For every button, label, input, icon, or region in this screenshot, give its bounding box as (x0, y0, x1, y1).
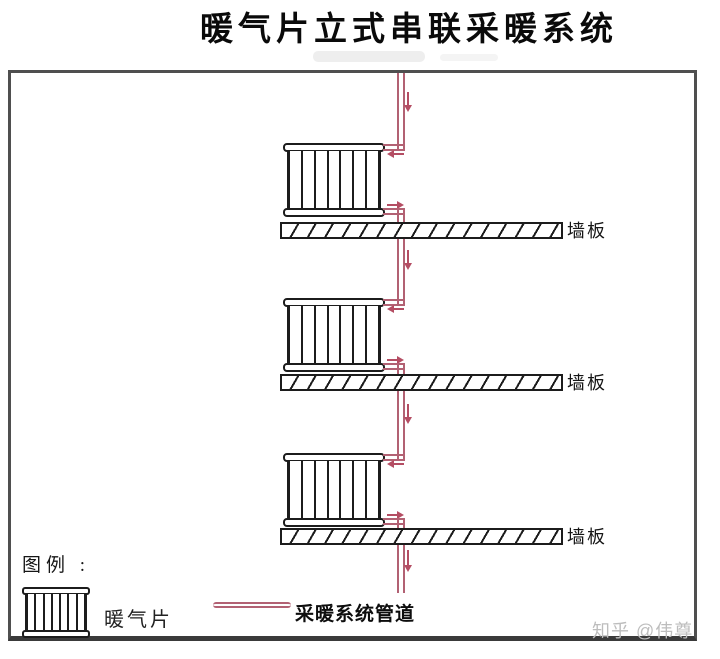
flow-arrow-down-2 (404, 250, 412, 270)
heating-system-diagram-page: 暖气片立式串联采暖系统 墙板 墙板 墙板 图例 : (0, 0, 720, 659)
radiator-column (341, 461, 352, 519)
radiator-column (329, 306, 340, 364)
radiator-floor3 (283, 453, 385, 527)
radiator-floor2 (283, 298, 385, 372)
legend-pipe-symbol (213, 602, 291, 608)
radiator-column (303, 151, 314, 209)
radiator-floor1 (283, 143, 385, 217)
radiator-column (367, 461, 378, 519)
legend-radiator-symbol (22, 587, 90, 638)
radiator-sections (287, 151, 381, 209)
radiator-column (367, 151, 378, 209)
radiator-sections (287, 461, 381, 519)
radiator-column (303, 306, 314, 364)
wall-slab-floor3 (280, 528, 563, 545)
radiator-column (78, 594, 84, 631)
radiator-bottom-header (283, 363, 385, 372)
flow-arrow-down-4 (404, 550, 412, 572)
radiator-column (341, 306, 352, 364)
wall-slab-floor1 (280, 222, 563, 239)
page-title: 暖气片立式串联采暖系统 (200, 2, 618, 50)
flow-arrow-inlet-floor2 (387, 305, 404, 313)
faded-watermark-smudge (313, 51, 425, 62)
wall-slab-label-floor3: 墙板 (567, 527, 607, 547)
radiator-column (341, 151, 352, 209)
radiator-column (329, 151, 340, 209)
pipe-segment-vertical-top (397, 73, 405, 151)
flow-arrow-down-1 (404, 92, 412, 112)
wall-slab-label-floor2: 墙板 (567, 373, 607, 393)
radiator-column (290, 151, 301, 209)
radiator-bottom-header (283, 518, 385, 527)
legend-pipe-label: 采暖系统管道 (295, 599, 415, 626)
radiator-bottom-header (22, 630, 90, 638)
wall-slab-floor2 (280, 374, 563, 391)
radiator-column (61, 594, 67, 631)
radiator-column (303, 461, 314, 519)
radiator-column (28, 594, 34, 631)
radiator-sections (287, 306, 381, 364)
pipe-outlet-floor3 (383, 518, 405, 525)
radiator-column (36, 594, 42, 631)
radiator-column (354, 461, 365, 519)
flow-arrow-down-3 (404, 404, 412, 424)
wall-slab-label-floor1: 墙板 (567, 221, 607, 241)
pipe-outlet-floor2 (383, 363, 405, 370)
radiator-column (316, 306, 327, 364)
radiator-column (290, 461, 301, 519)
radiator-bottom-header (283, 208, 385, 217)
radiator-column (316, 151, 327, 209)
watermark: 知乎 @伟尊 (592, 617, 693, 643)
radiator-column (290, 306, 301, 364)
legend-heading: 图例 : (22, 550, 90, 577)
radiator-column (329, 461, 340, 519)
radiator-column (45, 594, 51, 631)
legend-radiator-label: 暖气片 (104, 603, 173, 632)
radiator-column (316, 461, 327, 519)
pipe-outlet-floor1 (383, 208, 405, 215)
radiator-column (69, 594, 75, 631)
flow-arrow-inlet-floor1 (387, 150, 404, 158)
radiator-column (354, 306, 365, 364)
radiator-column (367, 306, 378, 364)
faded-watermark-smudge (440, 54, 498, 61)
flow-arrow-inlet-floor3 (387, 460, 404, 468)
radiator-column (53, 594, 59, 631)
radiator-sections (25, 594, 87, 631)
radiator-column (354, 151, 365, 209)
